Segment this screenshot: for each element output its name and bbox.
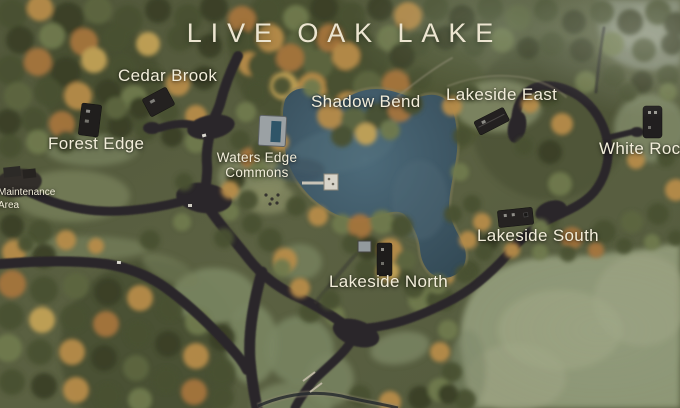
aerial-photo xyxy=(0,0,680,408)
dock-platform xyxy=(324,174,338,190)
label-waters-edge-line1: Waters Edge xyxy=(215,150,299,165)
label-cedar-brook: Cedar Brook xyxy=(118,67,217,85)
shed-lakeside-north xyxy=(358,241,371,252)
label-white-rock: White Rock xyxy=(599,140,680,158)
label-lakeside-south: Lakeside South xyxy=(477,227,599,245)
boathouse-waters-edge xyxy=(258,115,287,146)
driveway-white-rock xyxy=(630,127,644,137)
label-maintenance-area: Maintenance Area xyxy=(0,186,55,212)
label-waters-edge-commons: Waters Edge Commons xyxy=(215,150,299,180)
label-lakeside-east: Lakeside East xyxy=(446,86,557,104)
label-lakeside-north: Lakeside North xyxy=(329,273,448,291)
cul-de-sac-cedar-brook xyxy=(143,122,161,134)
label-waters-edge-line2: Commons xyxy=(215,165,299,180)
map-title: LIVE OAK LAKE xyxy=(0,18,680,49)
label-maintenance-line1: Maintenance xyxy=(0,186,55,199)
cabin-forest-edge xyxy=(78,103,102,137)
cabin-lakeside-south xyxy=(497,207,534,228)
label-shadow-bend: Shadow Bend xyxy=(311,93,421,111)
aerial-map: LIVE OAK LAKE Cedar Brook Forest Edge Sh… xyxy=(0,0,680,408)
label-forest-edge: Forest Edge xyxy=(48,135,144,153)
label-maintenance-line2: Area xyxy=(0,199,55,212)
